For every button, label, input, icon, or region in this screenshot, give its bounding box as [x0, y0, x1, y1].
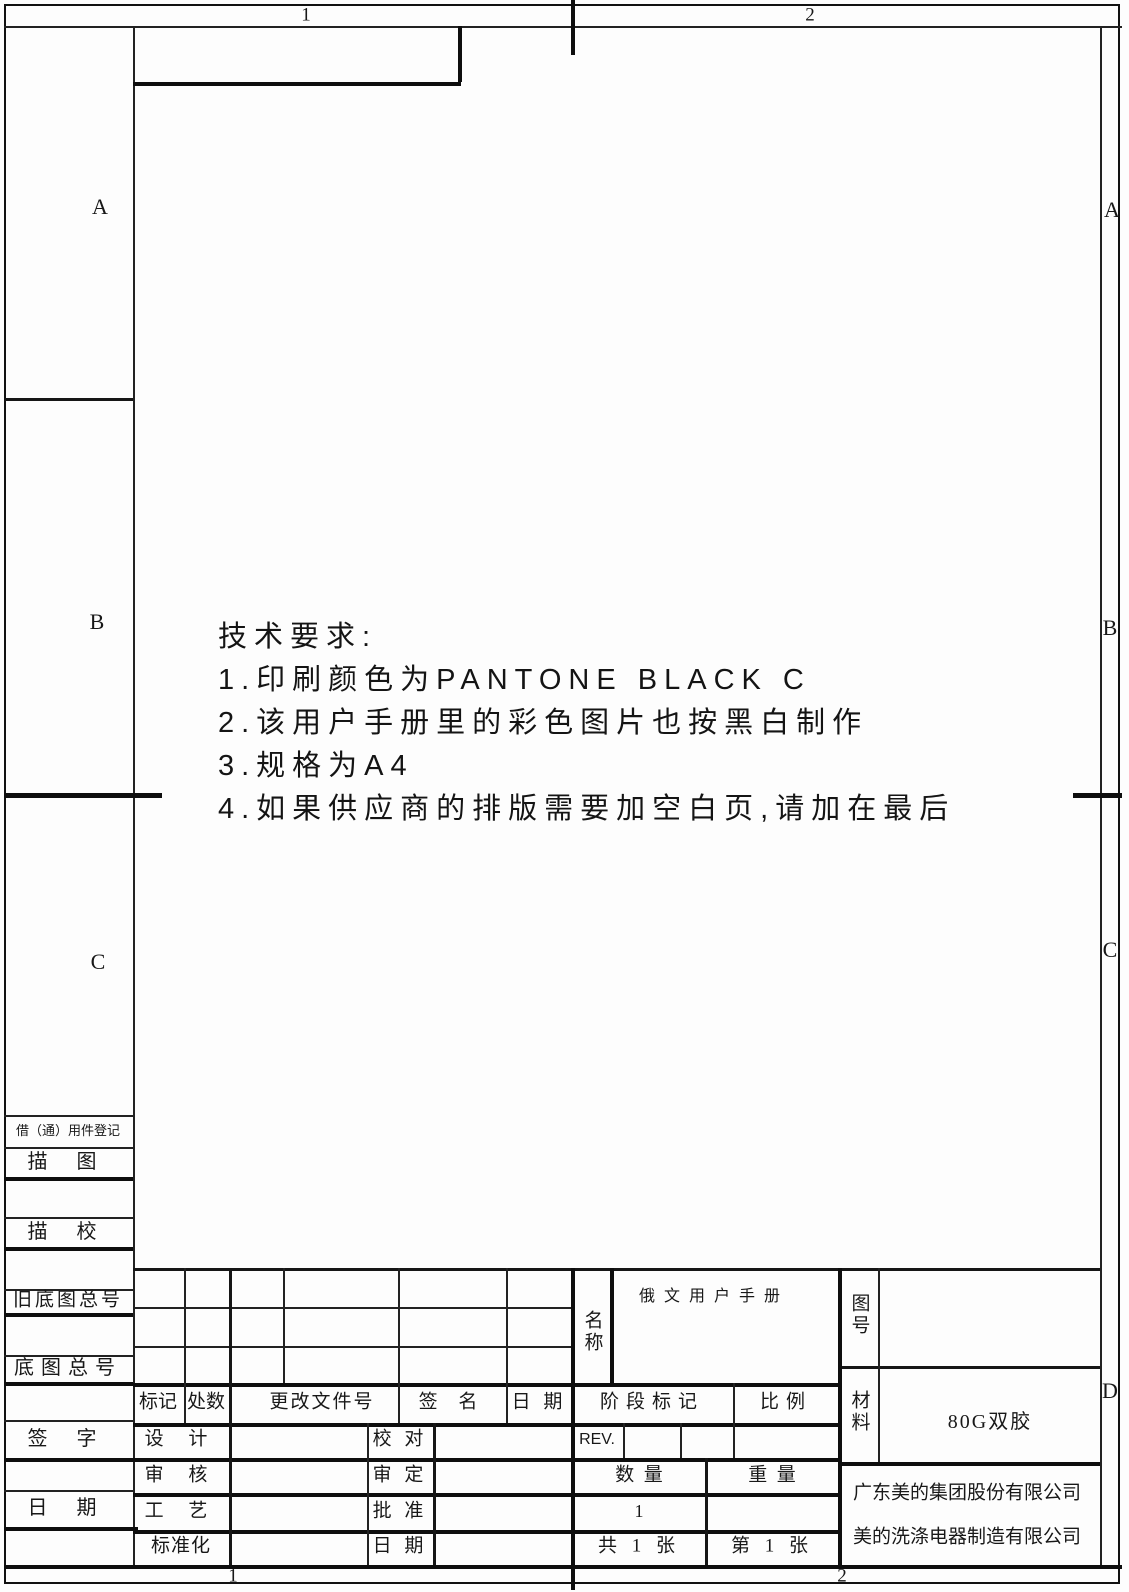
- zone-number-bottom-2: 2: [837, 1567, 847, 1588]
- margin-label-date: 日 期: [28, 1497, 109, 1519]
- zone-letter-left-c: C: [91, 950, 106, 974]
- approval-proofread: 校 对: [373, 1430, 428, 1451]
- rev-label: REV.: [579, 1431, 615, 1449]
- tech-req-item-1: 1.印刷颜色为PANTONE BLACK C: [218, 659, 955, 702]
- margin-line: [4, 1115, 133, 1117]
- frame-bottom-line: [4, 1565, 1122, 1569]
- title-block-line: [133, 1530, 838, 1534]
- margin-line: [4, 1382, 133, 1386]
- margin-label-tracing-check: 描 校: [28, 1221, 109, 1243]
- title-block-line: [184, 1268, 186, 1423]
- zone-letter-right-b: B: [1103, 616, 1118, 640]
- weight-label: 重 量: [748, 1466, 796, 1487]
- top-zone-divider: [571, 0, 575, 55]
- approval-approve: 批 准: [373, 1502, 428, 1523]
- zone-letter-right-c: C: [1103, 938, 1118, 962]
- material-label: 材料: [848, 1390, 869, 1434]
- approval-date: 日 期: [373, 1537, 428, 1558]
- zone-letter-right-a: A: [1104, 198, 1120, 222]
- sheet-total: 共 1 张: [598, 1537, 680, 1558]
- zone-number-bottom-1: 1: [228, 1567, 238, 1588]
- title-block-line: [367, 1423, 369, 1565]
- zone-number-top-2: 2: [805, 6, 815, 27]
- title-block-line: [610, 1268, 614, 1383]
- frame-top-line: [4, 26, 1122, 28]
- tech-req-item-2: 2.该用户手册里的彩色图片也按黑白制作: [218, 702, 955, 745]
- fold-mark-right: [1073, 793, 1122, 798]
- margin-line: [4, 1217, 133, 1219]
- title-block-line: [133, 1268, 1100, 1271]
- title-block-line: [705, 1458, 708, 1565]
- top-box-right-line: [458, 26, 462, 82]
- revision-header-count: 处数: [187, 1393, 225, 1414]
- title-block-line: [571, 1268, 575, 1565]
- left-zone-divider-ab: [4, 398, 133, 401]
- margin-label-master-no: 底图总号: [14, 1357, 122, 1379]
- tech-req-item-4: 4.如果供应商的排版需要加空白页,请加在最后: [218, 788, 955, 831]
- zone-letter-left-b: B: [90, 610, 105, 634]
- sheet-number: 第 1 张: [731, 1537, 813, 1558]
- drawing-sheet: A B C A B C D 1 2 1 2 技术要求: 1.印刷颜色为PANTO…: [0, 0, 1129, 1592]
- title-block-line: [838, 1462, 1100, 1466]
- title-block-line: [623, 1423, 625, 1458]
- name-label: 名称: [581, 1310, 602, 1354]
- margin-label-old-master-no: 旧底图总号: [13, 1291, 123, 1312]
- title-block-line: [283, 1268, 285, 1383]
- title-block-line: [680, 1423, 682, 1458]
- stage-mark-label: 阶段标记: [600, 1393, 704, 1414]
- revision-header-date: 日 期: [512, 1393, 567, 1414]
- title-block-line: [878, 1268, 880, 1462]
- title-block-line: [133, 1493, 838, 1497]
- company-line-1: 广东美的集团股份有限公司: [853, 1484, 1081, 1505]
- margin-line: [4, 1420, 133, 1422]
- title-block-line: [133, 1458, 838, 1462]
- tech-req-title: 技术要求:: [218, 616, 955, 659]
- tech-req-item-3: 3.规格为A4: [218, 745, 955, 788]
- margin-line: [4, 1177, 133, 1181]
- margin-line: [4, 1313, 133, 1317]
- margin-line: [4, 1247, 133, 1251]
- revision-header-change-doc-no: 更改文件号: [269, 1393, 374, 1414]
- zone-letter-left-a: A: [92, 195, 108, 219]
- margin-line: [4, 1147, 133, 1149]
- scale-label: 比例: [760, 1393, 812, 1414]
- title-block-line: [398, 1268, 400, 1423]
- approval-standardization: 标准化: [151, 1537, 211, 1558]
- zone-letter-right-d: D: [1102, 1379, 1118, 1403]
- name-value: 俄文用户手册: [639, 1288, 789, 1306]
- drawing-no-label: 图号: [848, 1293, 869, 1337]
- approval-design: 设 计: [145, 1430, 218, 1451]
- approval-process: 工 艺: [145, 1502, 218, 1523]
- material-value: 80G双胶: [948, 1411, 1032, 1433]
- title-block-line: [506, 1268, 508, 1423]
- technical-requirements: 技术要求: 1.印刷颜色为PANTONE BLACK C 2.该用户手册里的彩色…: [218, 616, 955, 831]
- approval-examine: 审 定: [373, 1466, 428, 1487]
- title-block-line: [229, 1268, 232, 1565]
- quantity-value: 1: [635, 1502, 644, 1522]
- top-box-bottom-line: [133, 82, 461, 86]
- margin-label-borrow-register: 借（通）用件登记: [16, 1124, 120, 1138]
- company-line-2: 美的洗涤电器制造有限公司: [853, 1528, 1081, 1549]
- approval-review: 审 核: [145, 1466, 218, 1487]
- margin-label-tracing: 描 图: [28, 1151, 109, 1173]
- title-block-line: [838, 1268, 842, 1565]
- title-block-line: [433, 1423, 436, 1565]
- margin-line: [4, 1458, 133, 1462]
- fold-mark-left: [4, 793, 162, 798]
- margin-line: [4, 1490, 133, 1492]
- quantity-label: 数 量: [615, 1466, 663, 1487]
- revision-header-mark: 标记: [139, 1393, 177, 1414]
- zone-number-top-1: 1: [301, 6, 311, 27]
- title-block-line: [733, 1383, 735, 1458]
- margin-line: [4, 1527, 138, 1531]
- margin-label-signature: 签 字: [28, 1428, 109, 1450]
- revision-header-signature: 签 名: [419, 1393, 486, 1414]
